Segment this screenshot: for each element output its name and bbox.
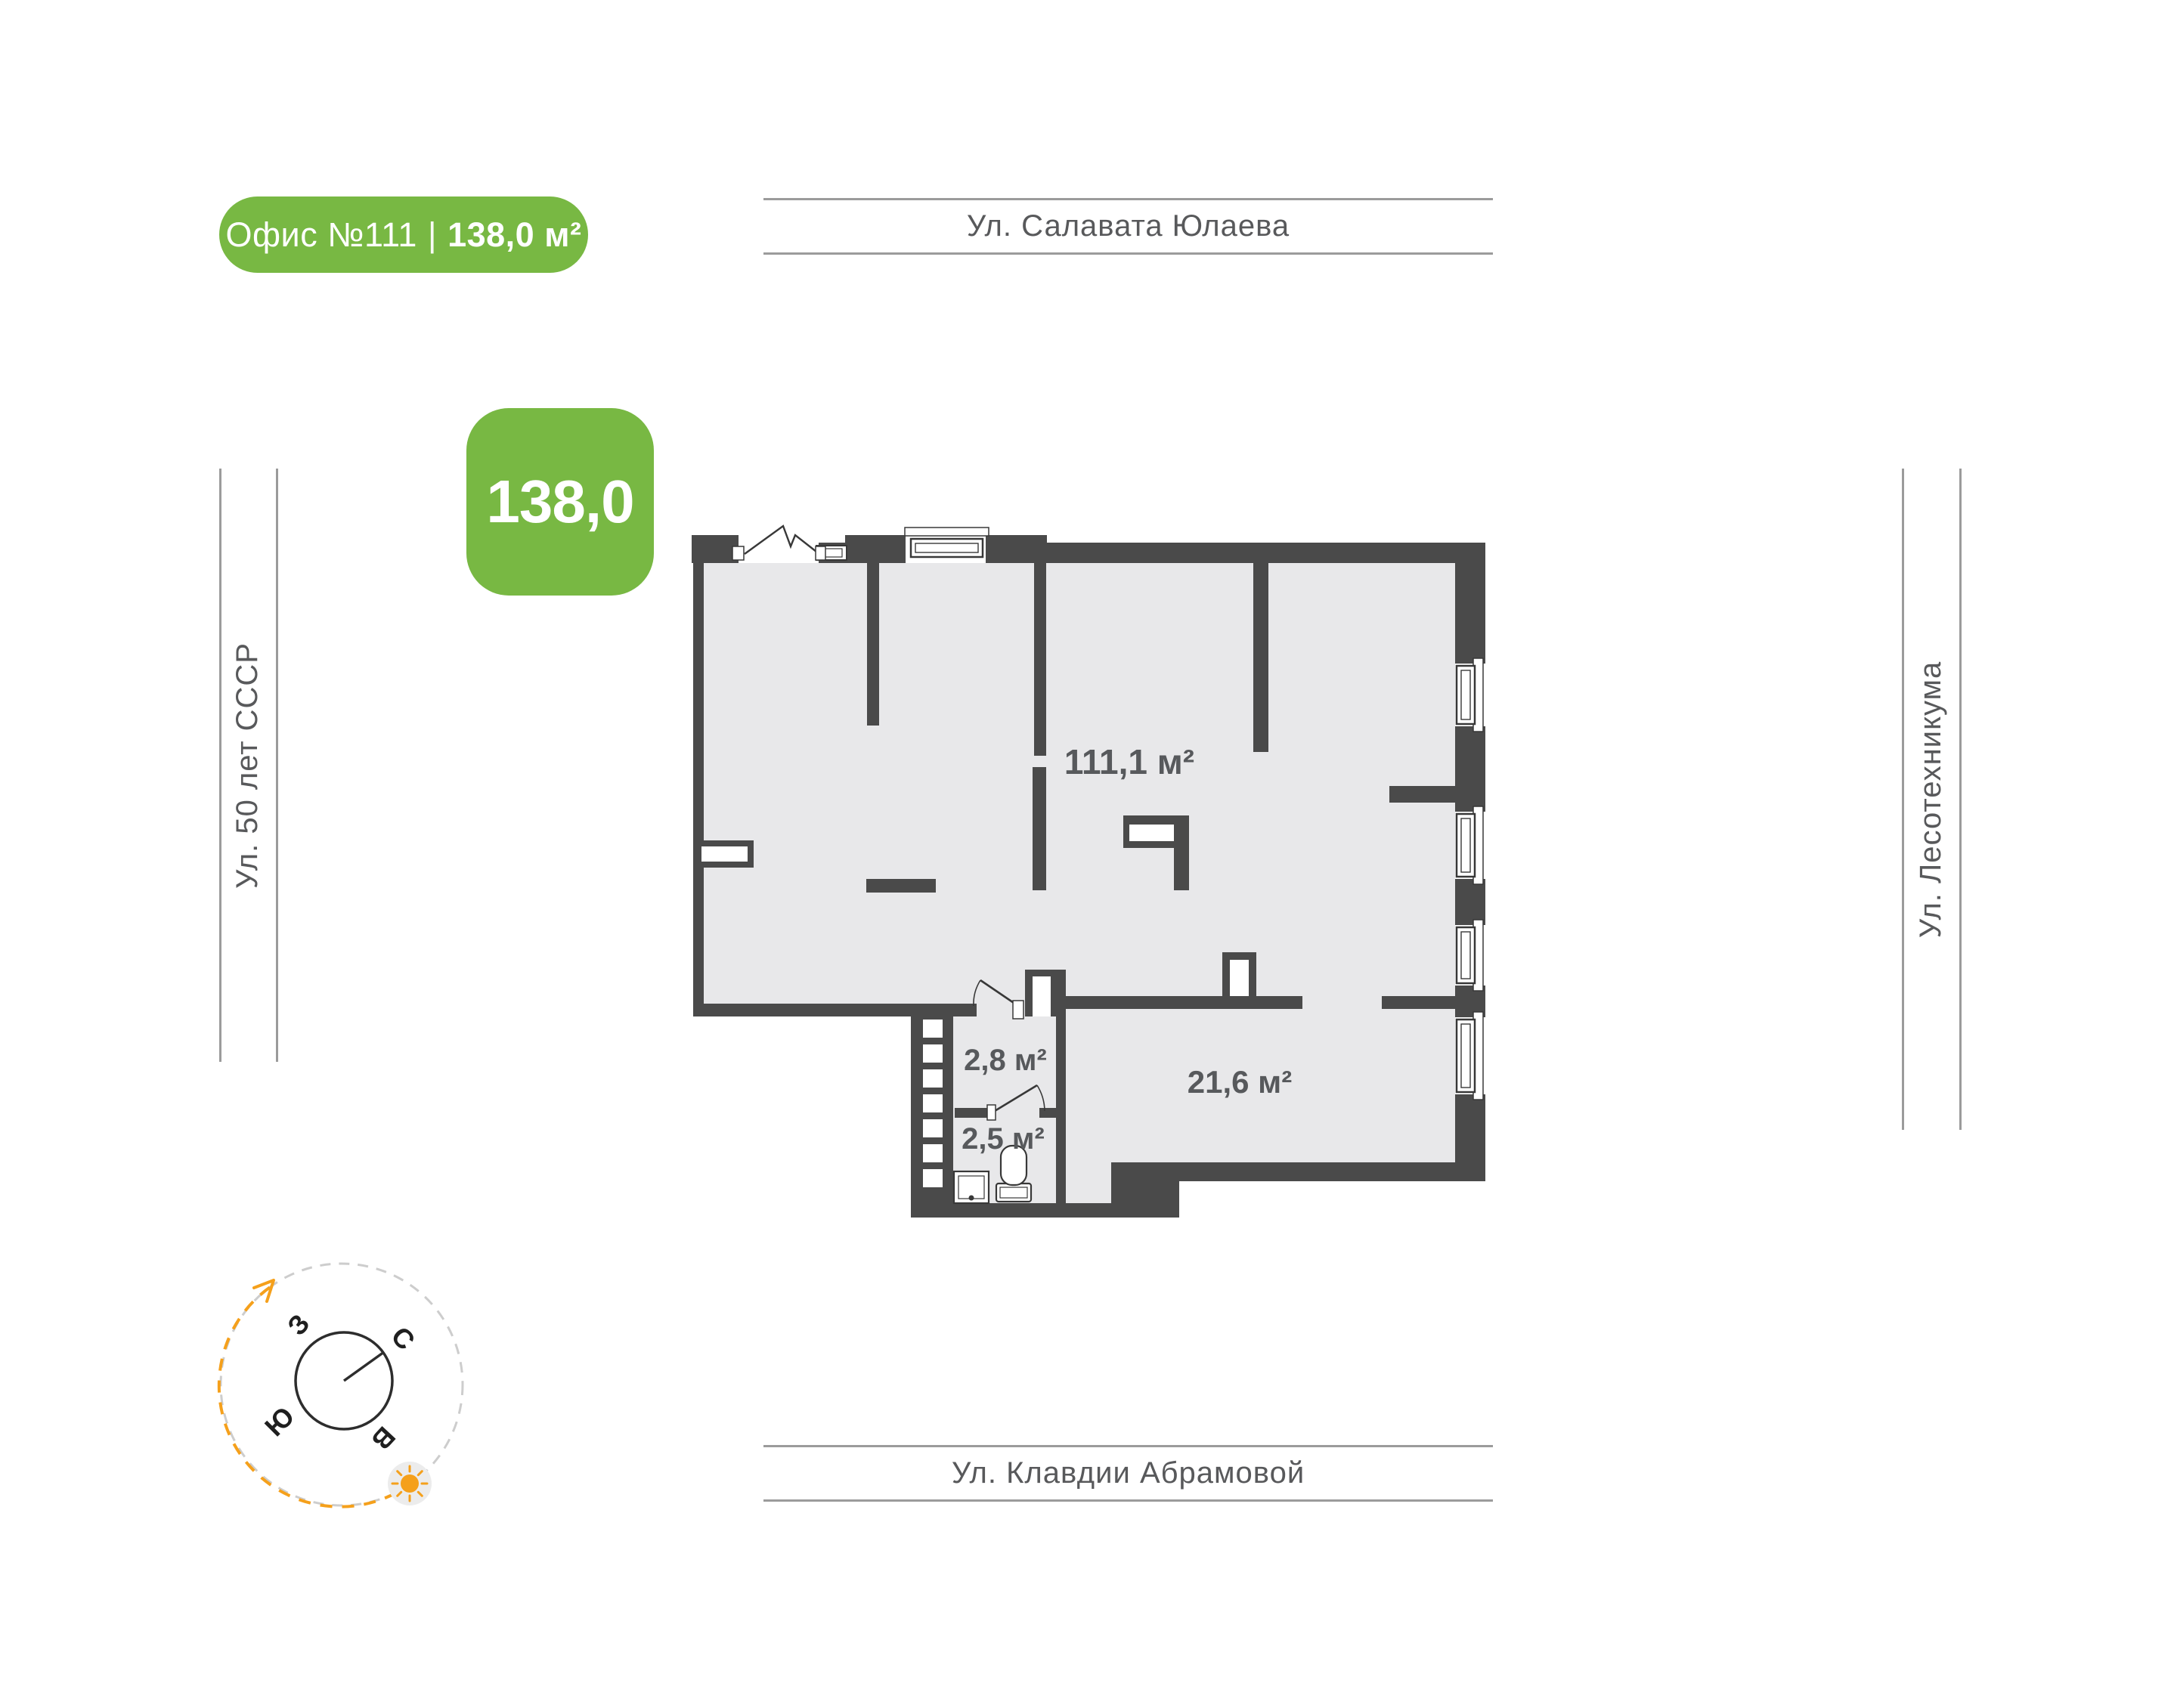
hook-slot (1129, 825, 1174, 841)
window-icon-r4-inner (1461, 1024, 1470, 1088)
wall-hook-left (1123, 825, 1129, 848)
door-opening-wc (994, 1108, 1039, 1118)
compass-letter-north: С (386, 1320, 422, 1356)
entry-door-opening (739, 528, 819, 563)
street-label-bottom: Ул. Клавдии Абрамовой (763, 1456, 1493, 1490)
wall-stub-right (1389, 786, 1455, 803)
badge-area: 138,0 м² (447, 215, 581, 255)
window-icon-top-sill (905, 528, 989, 536)
stair-tread (923, 1144, 943, 1162)
wall-stub-3 (1253, 563, 1268, 752)
area-tile: 138,0 (466, 408, 654, 596)
stair-tread (923, 1169, 943, 1187)
shaft-entry-slot (1033, 976, 1051, 1016)
street-line-left-outer (219, 469, 221, 1062)
floor-main-hall (704, 563, 1455, 1004)
staircase (923, 1020, 943, 1187)
wall-stub-horizontal (866, 879, 936, 893)
street-label-top: Ул. Салавата Юлаева (763, 209, 1493, 243)
wall-cabinet-top-right (1382, 996, 1455, 1009)
wall-niche-left-bottom (701, 862, 754, 868)
room-label-cabinet: 21,6 м² (1188, 1064, 1292, 1100)
compass: З С Ю В (197, 1239, 499, 1542)
window-icon-top-inner (915, 543, 978, 552)
wall-stub-2-upper (1034, 563, 1046, 756)
sun-icon (388, 1462, 432, 1505)
wall-hook-top (1123, 815, 1189, 825)
street-line-bottom-upper (763, 1445, 1493, 1447)
badge-divider: | (428, 215, 437, 255)
toilet-icon-tank-inner (1000, 1187, 1027, 1198)
stair-tread (923, 1020, 943, 1038)
stair-tread (923, 1044, 943, 1063)
door-hinge-wc (987, 1105, 996, 1120)
wall-stub-1 (867, 563, 879, 726)
compass-letter-south: Ю (259, 1400, 300, 1442)
floor-plan: 111,1 м² 2,8 м² 2,5 м² 21,6 м² (680, 521, 1497, 1232)
street-line-top-lower (763, 252, 1493, 255)
entry-door-hinge-right (816, 546, 825, 560)
street-line-right-inner (1902, 469, 1904, 1130)
floor-areas (704, 563, 1455, 1203)
door-hinge-entry-hall (1013, 1001, 1023, 1019)
wall-top-block-2 (845, 535, 906, 563)
stair-tread (923, 1094, 943, 1112)
street-label-left: Ул. 50 лет СССР (230, 577, 265, 955)
wall-hook-bottom (1129, 841, 1174, 848)
wall-wc-divider-right (1039, 1108, 1056, 1118)
door-opening-cabinet (1302, 996, 1382, 1009)
compass-letter-west: З (281, 1308, 316, 1341)
wall-bottom-main (693, 1004, 977, 1016)
entry-door-hinge-left (732, 546, 744, 560)
stair-tread (923, 1119, 943, 1137)
street-line-bottom-lower (763, 1499, 1493, 1502)
window-icon-r2-inner (1461, 818, 1470, 872)
page-root: { "header_badge": { "office_no": "Офис №… (0, 0, 2177, 1708)
niche-left-slot (701, 846, 748, 862)
compass-letter-east: В (366, 1421, 402, 1456)
badge-office-number: Офис №111 (226, 215, 417, 255)
sink-icon-drain (969, 1196, 974, 1201)
wall-cabinet-top-left (1066, 996, 1302, 1009)
wall-entry-cabinet (1056, 996, 1066, 1218)
wall-top-block-3 (986, 535, 1047, 563)
door-opening-entry-hall (977, 1004, 1014, 1016)
wall-niche-left-top (701, 840, 754, 846)
wall-hook-leg (1174, 825, 1189, 890)
floor-cabinet-notch (1066, 1162, 1111, 1203)
stair-tread (923, 1069, 943, 1088)
room-label-wc: 2,5 м² (962, 1122, 1045, 1156)
area-tile-value: 138,0 (486, 467, 633, 537)
shaft-cabinet-slot (1230, 960, 1249, 996)
street-line-left-inner (276, 469, 278, 1062)
wall-stub-2-lower (1033, 767, 1046, 890)
office-badge: Офис №111 | 138,0 м² (219, 196, 588, 273)
room-label-main-hall: 111,1 м² (1064, 742, 1194, 781)
street-line-top-upper (763, 198, 1493, 200)
sun-icon-core (401, 1474, 419, 1493)
window-icon-r1-inner (1461, 670, 1470, 719)
room-label-entry-hall: 2,8 м² (964, 1044, 1047, 1077)
wall-left (693, 535, 704, 1016)
street-label-right: Ул. Лесотехникума (1913, 611, 1948, 989)
street-line-right-outer (1959, 469, 1962, 1130)
window-icon-r3-inner (1461, 932, 1470, 979)
